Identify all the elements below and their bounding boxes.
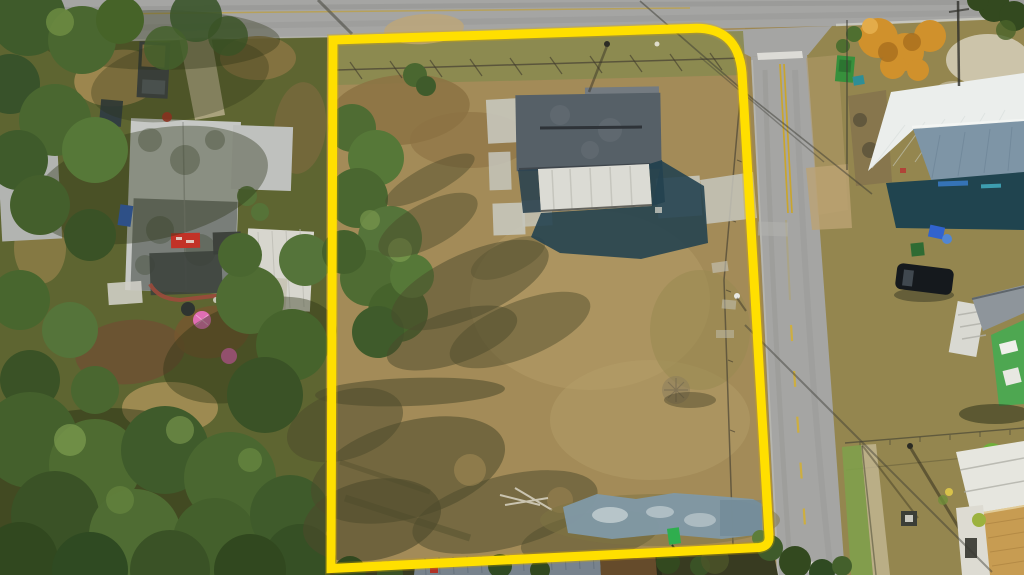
aerial-photo-stage	[0, 0, 1024, 575]
slab-wear	[646, 506, 674, 518]
banner-detail	[176, 237, 182, 240]
slab-dark-section	[720, 500, 762, 536]
bush	[846, 26, 862, 42]
tractor-roof	[838, 59, 851, 72]
ac-unit	[655, 207, 662, 213]
barrel	[181, 302, 195, 316]
blue-equipment	[938, 180, 968, 186]
slab-wear	[684, 513, 716, 527]
white-marker	[655, 42, 660, 47]
blue-bin	[942, 234, 952, 244]
bush	[836, 39, 850, 53]
teal-mower	[852, 75, 864, 86]
roof-mottle	[581, 141, 599, 159]
road-patch	[758, 221, 788, 236]
roof-mottle	[550, 105, 570, 125]
shaded-patio	[149, 251, 222, 295]
utility-box-lid	[905, 515, 913, 522]
roof-mottle	[598, 118, 622, 142]
white-deck	[107, 281, 142, 305]
car-windshield	[902, 269, 914, 286]
house-roof	[515, 93, 661, 172]
slab-wear	[592, 507, 628, 523]
yard-clutter	[853, 113, 867, 127]
bush	[251, 203, 269, 221]
white-carport-awning	[538, 164, 652, 212]
warehouse-slate-roof	[913, 121, 1024, 182]
grass-patch	[650, 270, 750, 390]
light-dapple	[454, 454, 486, 486]
bush	[938, 495, 948, 505]
green-mower	[667, 527, 681, 545]
yard-clutter	[900, 168, 906, 173]
bush	[972, 513, 986, 527]
aerial-photo	[0, 0, 1024, 575]
flowers	[945, 488, 953, 496]
banner-detail	[186, 240, 194, 243]
dirt-driveway	[806, 164, 852, 230]
green-bin	[910, 242, 924, 256]
blue-equipment	[981, 184, 1001, 189]
